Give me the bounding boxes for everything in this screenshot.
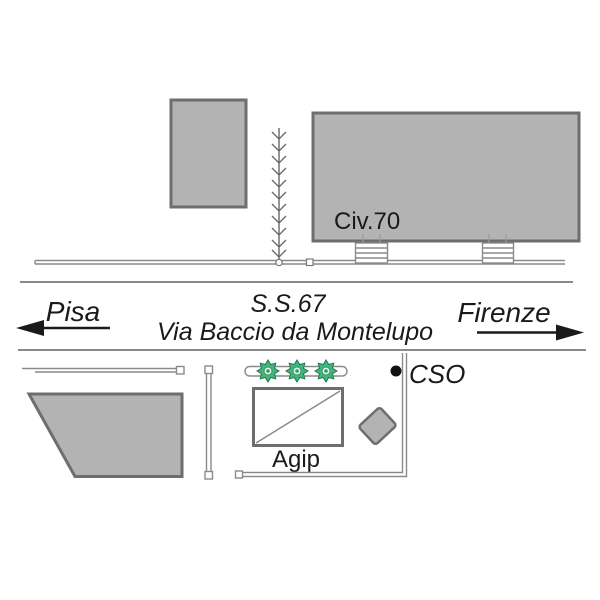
gas-station-label: Agip xyxy=(272,446,320,473)
hedge-row-icon xyxy=(272,128,286,260)
building-civ70-label: Civ.70 xyxy=(334,208,400,235)
gas-station-building xyxy=(254,389,343,446)
street-map: Civ.70 Pisa S.S.67 Via Baccio da xyxy=(0,0,600,600)
bush-icon xyxy=(286,360,308,382)
cso-marker-dot xyxy=(391,366,402,377)
lot-trapezoid xyxy=(29,394,182,477)
bush-icon xyxy=(315,360,337,382)
south-rail-west xyxy=(22,367,184,375)
building-small xyxy=(171,100,246,207)
kiosk-rotated xyxy=(358,407,396,445)
cso-label: CSO xyxy=(409,359,465,389)
street-name-label: Via Baccio da Montelupo xyxy=(157,318,433,346)
route-number-label: S.S.67 xyxy=(250,290,326,318)
direction-pisa-label: Pisa xyxy=(46,296,100,327)
map-canvas: Civ.70 Pisa S.S.67 Via Baccio da xyxy=(0,0,600,600)
hedge-node xyxy=(276,259,282,265)
bush-icon xyxy=(257,360,279,382)
direction-firenze-label: Firenze xyxy=(457,297,550,328)
wall-node xyxy=(307,259,314,266)
divider-pole xyxy=(205,366,213,479)
